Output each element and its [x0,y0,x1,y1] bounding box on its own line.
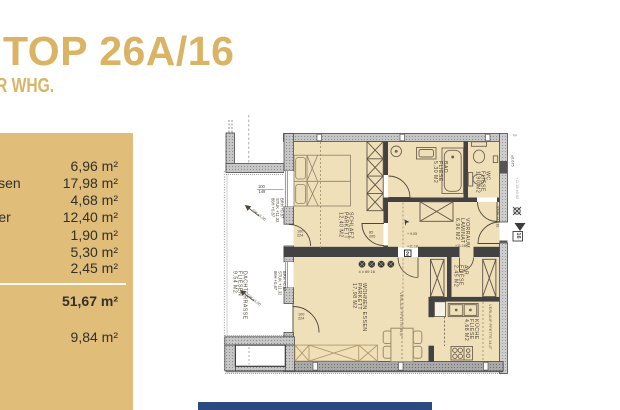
svg-text:OK +1,50: OK +1,50 [246,294,261,307]
svg-text:+11.18: +11.18 [407,244,418,248]
svg-text:DACHTERRASSEFLIESEN9,54 M2: DACHTERRASSEFLIESEN9,54 M2 [232,271,248,320]
svg-text:2: 2 [406,252,409,258]
svg-text:224: 224 [297,234,303,238]
svg-text:STUK +11.32: STUK +11.32 [278,271,283,296]
svg-text:STUK +11.18: STUK +11.18 [496,206,500,227]
svg-text:2: 2 [513,134,518,137]
svg-text:+ 9.05: + 9.05 [407,232,417,236]
svg-text:86H +0.87: 86H +0.87 [273,271,278,291]
svg-text:BRH +0.87: BRH +0.87 [282,271,287,292]
svg-text:+11.18 ±0.00: +11.18 ±0.00 [515,177,519,199]
svg-text:+11.18: +11.18 [455,244,466,248]
svg-text:205: 205 [369,235,375,239]
svg-text:KÜCHEFLIESE4,68 M2: KÜCHEFLIESE4,68 M2 [463,319,480,341]
svg-text:±0.675: ±0.675 [511,155,515,167]
svg-text:SCHLAFZ.PARKETT12,40 M2: SCHLAFZ.PARKETT12,40 M2 [338,212,354,241]
svg-text:4 x 69 16: 4 x 69 16 [359,269,376,274]
svg-text:OK +1,50: OK +1,50 [251,209,266,222]
svg-text:VERLAUF PFETTE 14,0°: VERLAUF PFETTE 14,0° [488,304,493,350]
svg-text:STUK +11.32: STUK +11.32 [275,198,280,223]
svg-text:BRH +0.87: BRH +0.87 [280,198,285,219]
svg-text:VERLAUF PFETTE 14,0°: VERLAUF PFETTE 14,0° [399,292,404,338]
svg-text:86H +0.87: 86H +0.87 [271,198,276,218]
svg-text:224: 224 [298,317,304,321]
svg-text:16: 16 [515,233,521,239]
